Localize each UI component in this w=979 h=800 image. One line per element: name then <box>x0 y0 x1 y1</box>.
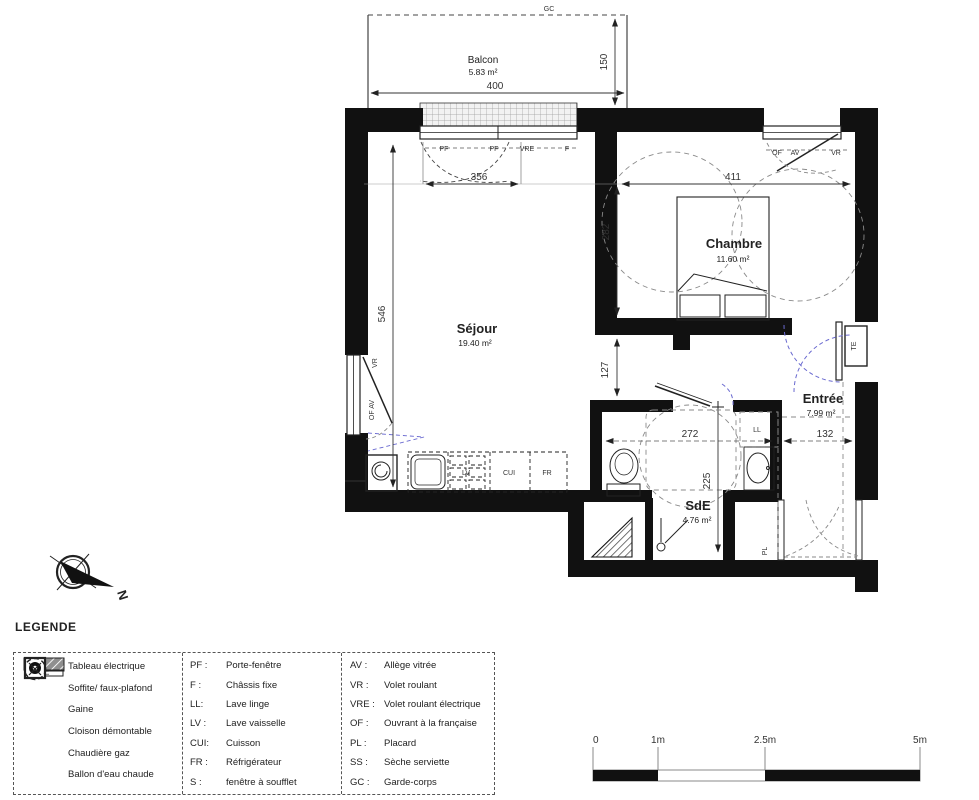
entrance-door-swing <box>784 325 841 382</box>
legend-item-chaudiere-gaz: Chaudière gaz <box>22 742 154 764</box>
legend-abbrev-column-2: AV :Allège vitrée VR :Volet roulant VRE … <box>350 656 481 792</box>
f-label: F <box>565 146 569 153</box>
balcon-area: 5.83 m² <box>469 67 498 77</box>
scale-1m: 1m <box>651 735 665 746</box>
legend-abbr-pl: PL :Placard <box>350 734 481 753</box>
room-labels: Séjour 19.40 m² Chambre 11.60 m² Entrée … <box>457 236 843 525</box>
legend-abbr-ll: LL:Lave linge <box>190 695 297 714</box>
legend-abbr-pf: PF :Porte-fenêtre <box>190 656 297 675</box>
dim-282: 282 <box>601 223 612 240</box>
dim-411: 411 <box>725 172 741 183</box>
cui-label: CUI <box>503 470 515 477</box>
legend-item-gaine: Gaine <box>22 699 154 721</box>
dim-356: 356 <box>471 172 488 183</box>
kitchen-sink <box>411 455 445 489</box>
av-label: AV <box>791 150 800 157</box>
of-label: OF <box>772 150 782 157</box>
of-av-left-label: OF AV <box>369 400 376 420</box>
scale-0: 0 <box>593 735 599 746</box>
gc-label: GC <box>544 6 555 13</box>
gaine-duct <box>592 518 632 557</box>
sde-door-swing <box>722 384 733 406</box>
placard-door-swing-2 <box>806 500 858 556</box>
dim-150: 150 <box>599 53 610 70</box>
dim-400: 400 <box>487 81 504 92</box>
walls <box>345 108 878 592</box>
legend-divider-2 <box>341 653 342 794</box>
pf-label-2: PF <box>490 146 499 153</box>
legend-abbr-lv: LV :Lave vaisselle <box>190 714 297 733</box>
balcon-name: Balcon <box>468 55 499 66</box>
legend-divider-1 <box>182 653 183 794</box>
sde-area: 4.76 m² <box>683 515 712 525</box>
sejour-name: Séjour <box>457 321 497 336</box>
legend-item-cloison-demontable: Cloison démontable <box>22 721 154 743</box>
lv-label: LV <box>462 470 470 477</box>
pf-label-1: PF <box>440 146 449 153</box>
legend-abbrev-column-1: PF :Porte-fenêtre F :Châssis fixe LL:Lav… <box>190 656 297 792</box>
ll-label: LL <box>753 427 761 434</box>
legend-symbols-column: TE Tableau électrique Soffite/ faux-plaf… <box>22 656 154 786</box>
sejour-door-swing <box>368 433 424 451</box>
legend-abbr-gc: GC :Garde-corps <box>350 772 481 791</box>
legend-abbr-ss: SS :Sèche serviette <box>350 753 481 772</box>
legend-abbr-s: S :fenêtre à soufflet <box>190 772 297 791</box>
vr-left-label: VR <box>372 358 379 368</box>
fr-label: FR <box>542 470 551 477</box>
placard-panel <box>778 500 784 560</box>
dim-225: 225 <box>702 472 713 489</box>
legend-abbr-of: OF :Ouvrant à la française <box>350 714 481 733</box>
balcony-glazing <box>420 103 577 127</box>
scale-bar: 0 1m 2.5m 5m <box>593 735 927 781</box>
dim-546: 546 <box>377 305 388 322</box>
legend-abbr-av: AV :Allège vitrée <box>350 656 481 675</box>
chambre-area: 11.60 m² <box>717 254 750 264</box>
te-label: TE <box>851 341 858 350</box>
legend-abbr-f: F :Châssis fixe <box>190 675 297 694</box>
scale-2-5m: 2.5m <box>754 735 776 746</box>
chambre-name: Chambre <box>706 236 762 251</box>
dim-272: 272 <box>682 429 699 440</box>
window-entree-frame <box>856 500 862 560</box>
entree-area: 7.99 m² <box>807 408 836 418</box>
washbasin <box>744 447 774 490</box>
dim-127: 127 <box>600 361 611 378</box>
entree-name: Entrée <box>803 391 843 406</box>
pl-label: PL <box>762 547 769 556</box>
vre-label: VRE <box>520 146 535 153</box>
dim-132: 132 <box>817 429 834 440</box>
scale-5m: 5m <box>913 735 927 746</box>
floor-plan-page: GC 400 150 Balcon 5.83 m² <box>0 0 979 800</box>
north-compass: N <box>50 554 131 602</box>
legend-item-ballon-eau-chaude: Ballon d'eau chaude <box>22 764 154 786</box>
legend-box: TE Tableau électrique Soffite/ faux-plaf… <box>13 652 495 795</box>
north-letter: N <box>114 588 131 602</box>
toilet <box>607 449 640 496</box>
legend-abbr-vr: VR :Volet roulant <box>350 675 481 694</box>
placard-door-swing-1 <box>786 504 840 556</box>
legend-title: LEGENDE <box>15 620 77 634</box>
legend-abbr-cui: CUI:Cuisson <box>190 734 297 753</box>
sejour-area: 19.40 m² <box>458 338 492 348</box>
entrance-door-leaf <box>836 322 842 380</box>
legend-abbr-vre: VRE :Volet roulant électrique <box>350 695 481 714</box>
legend-abbr-fr: FR :Réfrigérateur <box>190 753 297 772</box>
sde-name: SdE <box>685 498 711 513</box>
vr-label: VR <box>831 150 841 157</box>
